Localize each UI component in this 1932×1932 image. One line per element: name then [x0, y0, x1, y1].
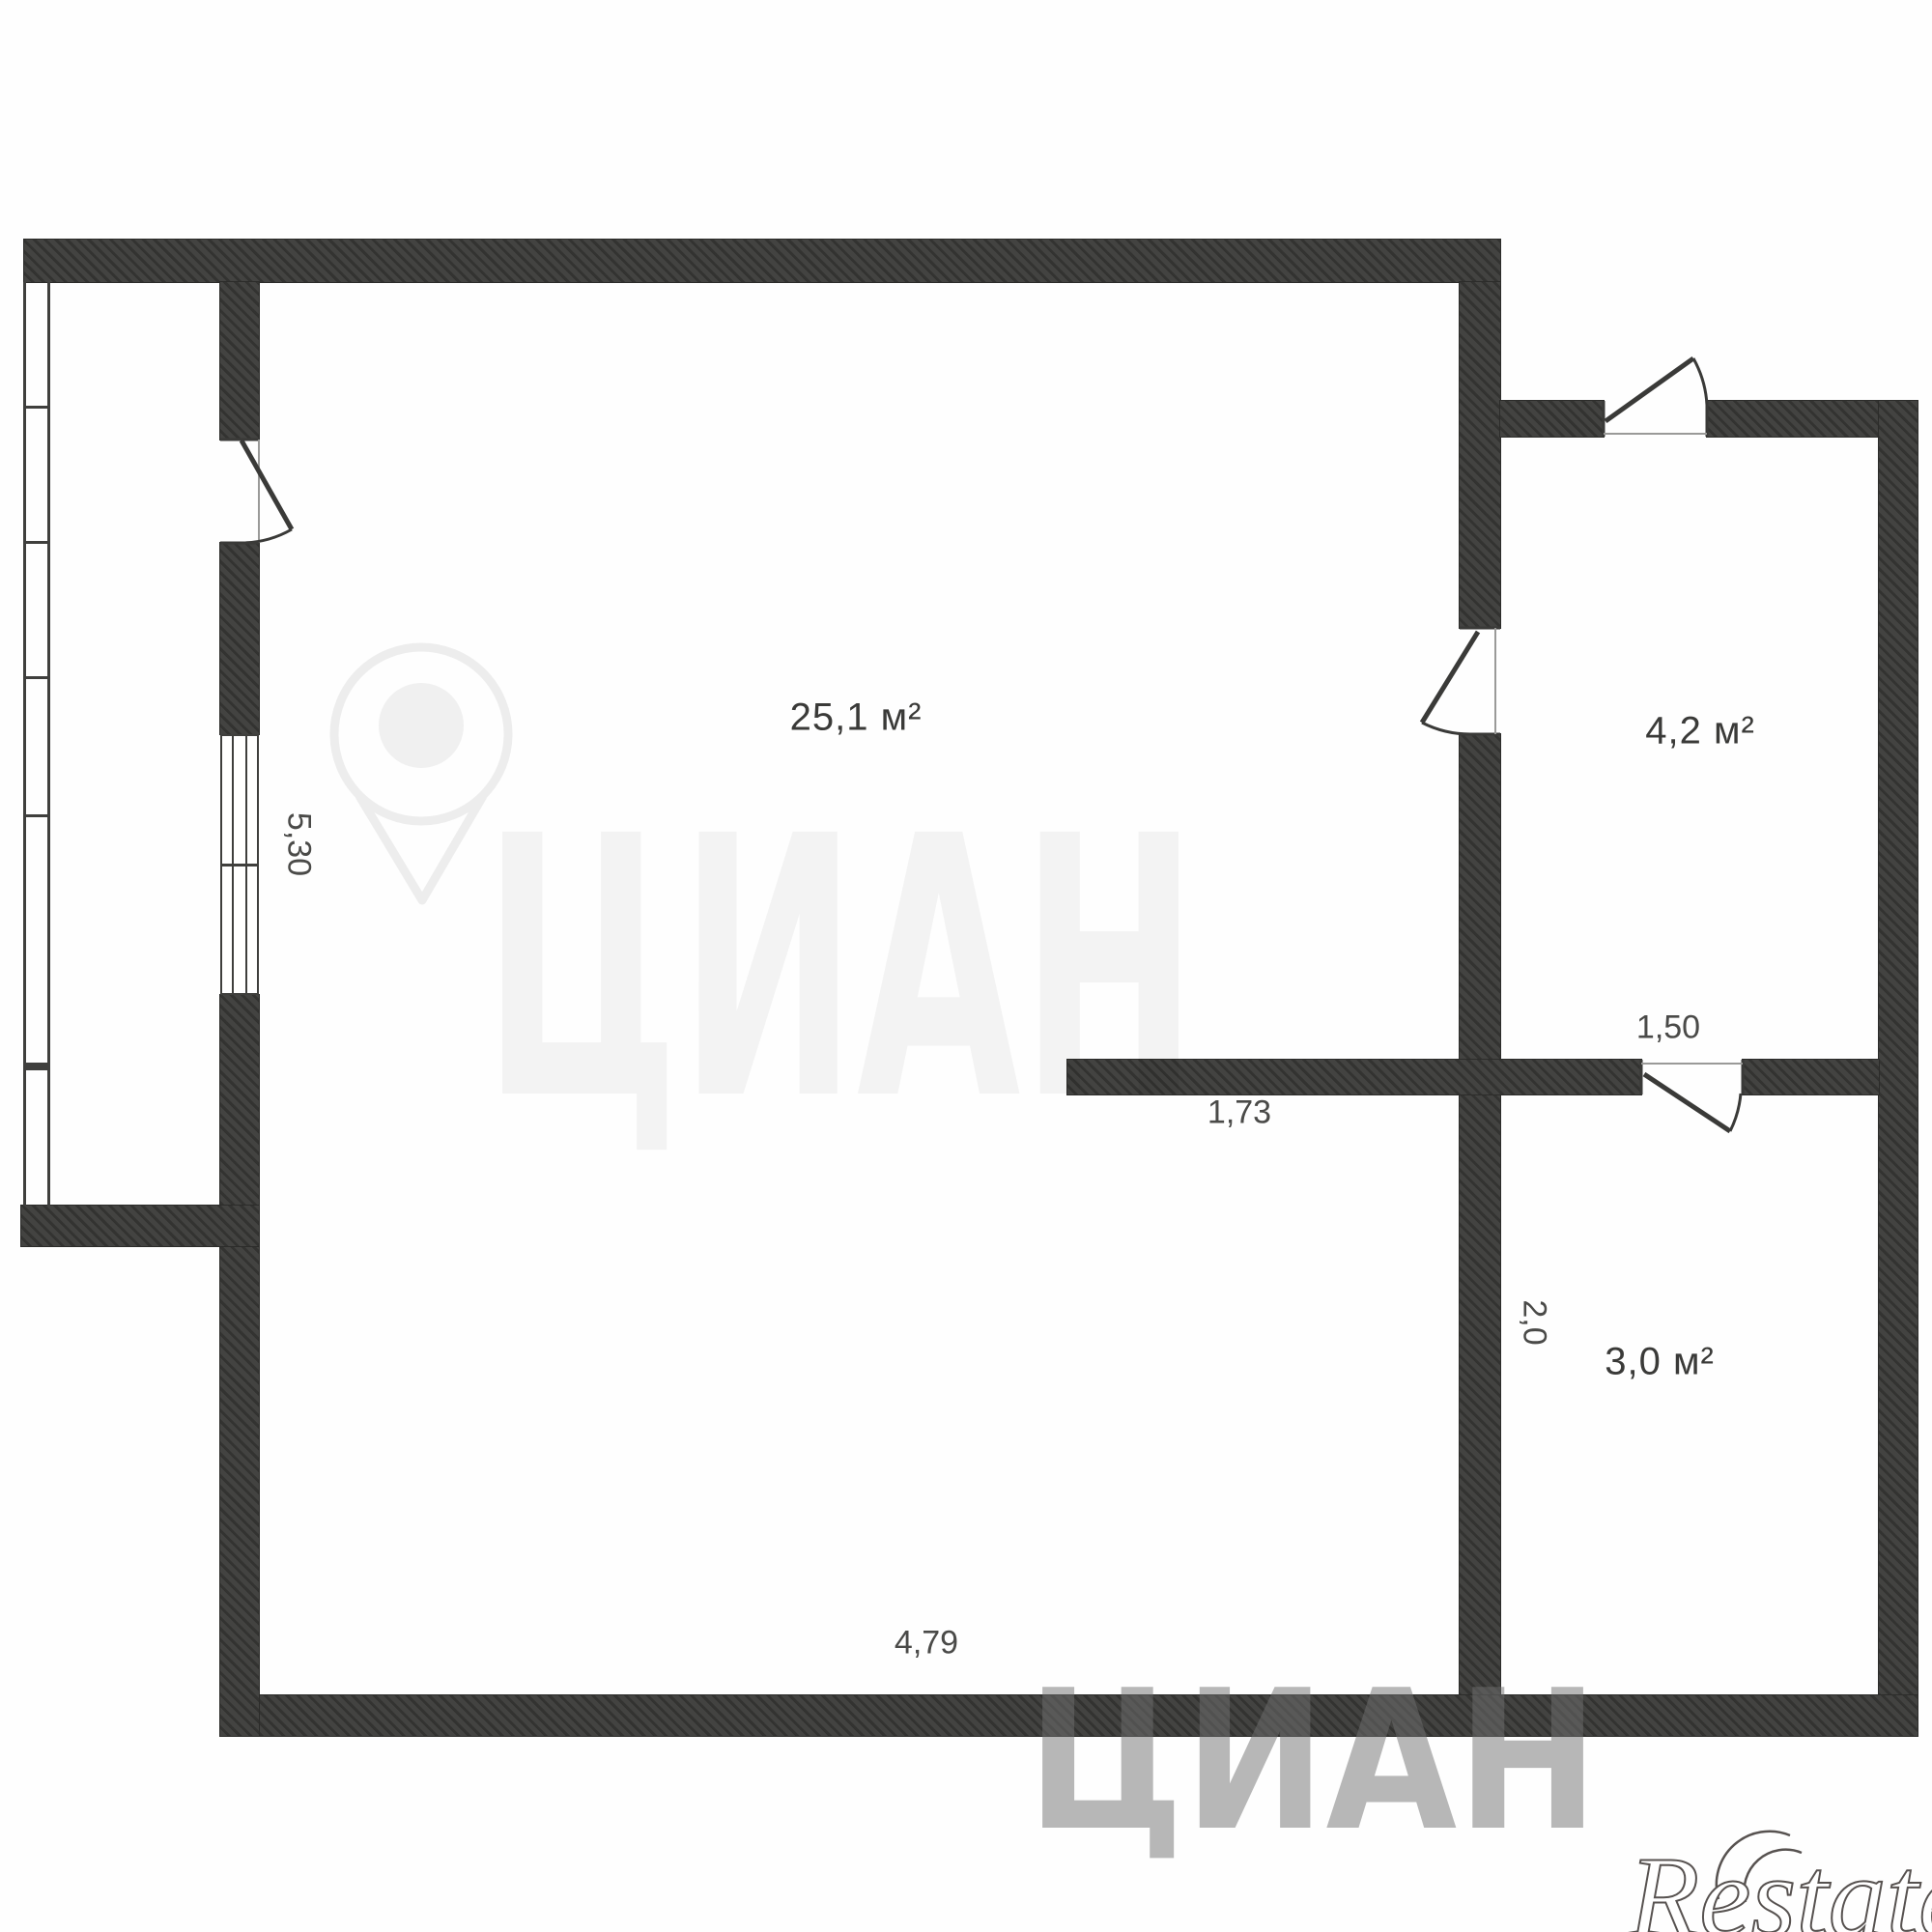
cian-center-watermark: ЦИАН: [483, 760, 1198, 1179]
wall-balcony-bottom: [21, 1206, 259, 1246]
door-balcony: [220, 440, 292, 543]
balcony-glazing-mullion-1: [23, 406, 50, 409]
wall-main-left-b: [220, 543, 259, 734]
wall-main-right-upper: [1460, 282, 1500, 628]
dimension-label-2-0: 2,0: [1516, 1299, 1553, 1345]
floor-plan: 25,1 м² 4,2 м² 3,0 м² 5,30 4,79 1,73 1,5…: [0, 0, 1932, 1932]
door-main-to-hallway: [1422, 628, 1500, 734]
wall-top: [24, 240, 1500, 282]
wall-main-left-a: [220, 282, 259, 440]
wall-hallway-top-left: [1500, 401, 1604, 437]
room-label-main: 25,1 м²: [790, 696, 923, 740]
wall-partition-right: [1743, 1060, 1879, 1094]
wall-main-left-c: [220, 995, 259, 1736]
dimension-label-5-30: 5,30: [280, 812, 318, 876]
restate-logo-text: Restate: [1628, 1833, 1932, 1932]
wall-partition-left: [1067, 1060, 1641, 1094]
door-entrance: [1604, 358, 1707, 437]
room-label-hallway: 4,2 м²: [1645, 710, 1755, 753]
dimension-label-1-73: 1,73: [1207, 1094, 1271, 1132]
balcony-glazing-mullion-2: [23, 541, 50, 544]
restate-logo: Restate: [1628, 1832, 1932, 1932]
door-bathroom: [1641, 1060, 1743, 1131]
window-main-room-mid-tick: [220, 864, 259, 867]
plan-overlay: ЦИАН ЦИАН: [0, 0, 1932, 1932]
balcony-glazing-mullion-5: [23, 1063, 50, 1070]
wall-outer-right: [1879, 401, 1918, 1736]
dimension-label-1-50: 1,50: [1636, 1009, 1700, 1047]
room-label-bathroom: 3,0 м²: [1605, 1341, 1715, 1384]
wall-bottom: [220, 1695, 1918, 1736]
wall-main-right-lower: [1460, 734, 1500, 1736]
cian-bottom-watermark: ЦИАН: [1027, 1649, 1599, 1874]
dimension-label-4-79: 4,79: [895, 1625, 958, 1662]
balcony-glazing-mullion-4: [23, 814, 50, 817]
balcony-glazing-mullion-3: [23, 676, 50, 679]
cian-pin-watermark-icon: [334, 647, 508, 900]
wall-hallway-top-right: [1707, 401, 1879, 437]
